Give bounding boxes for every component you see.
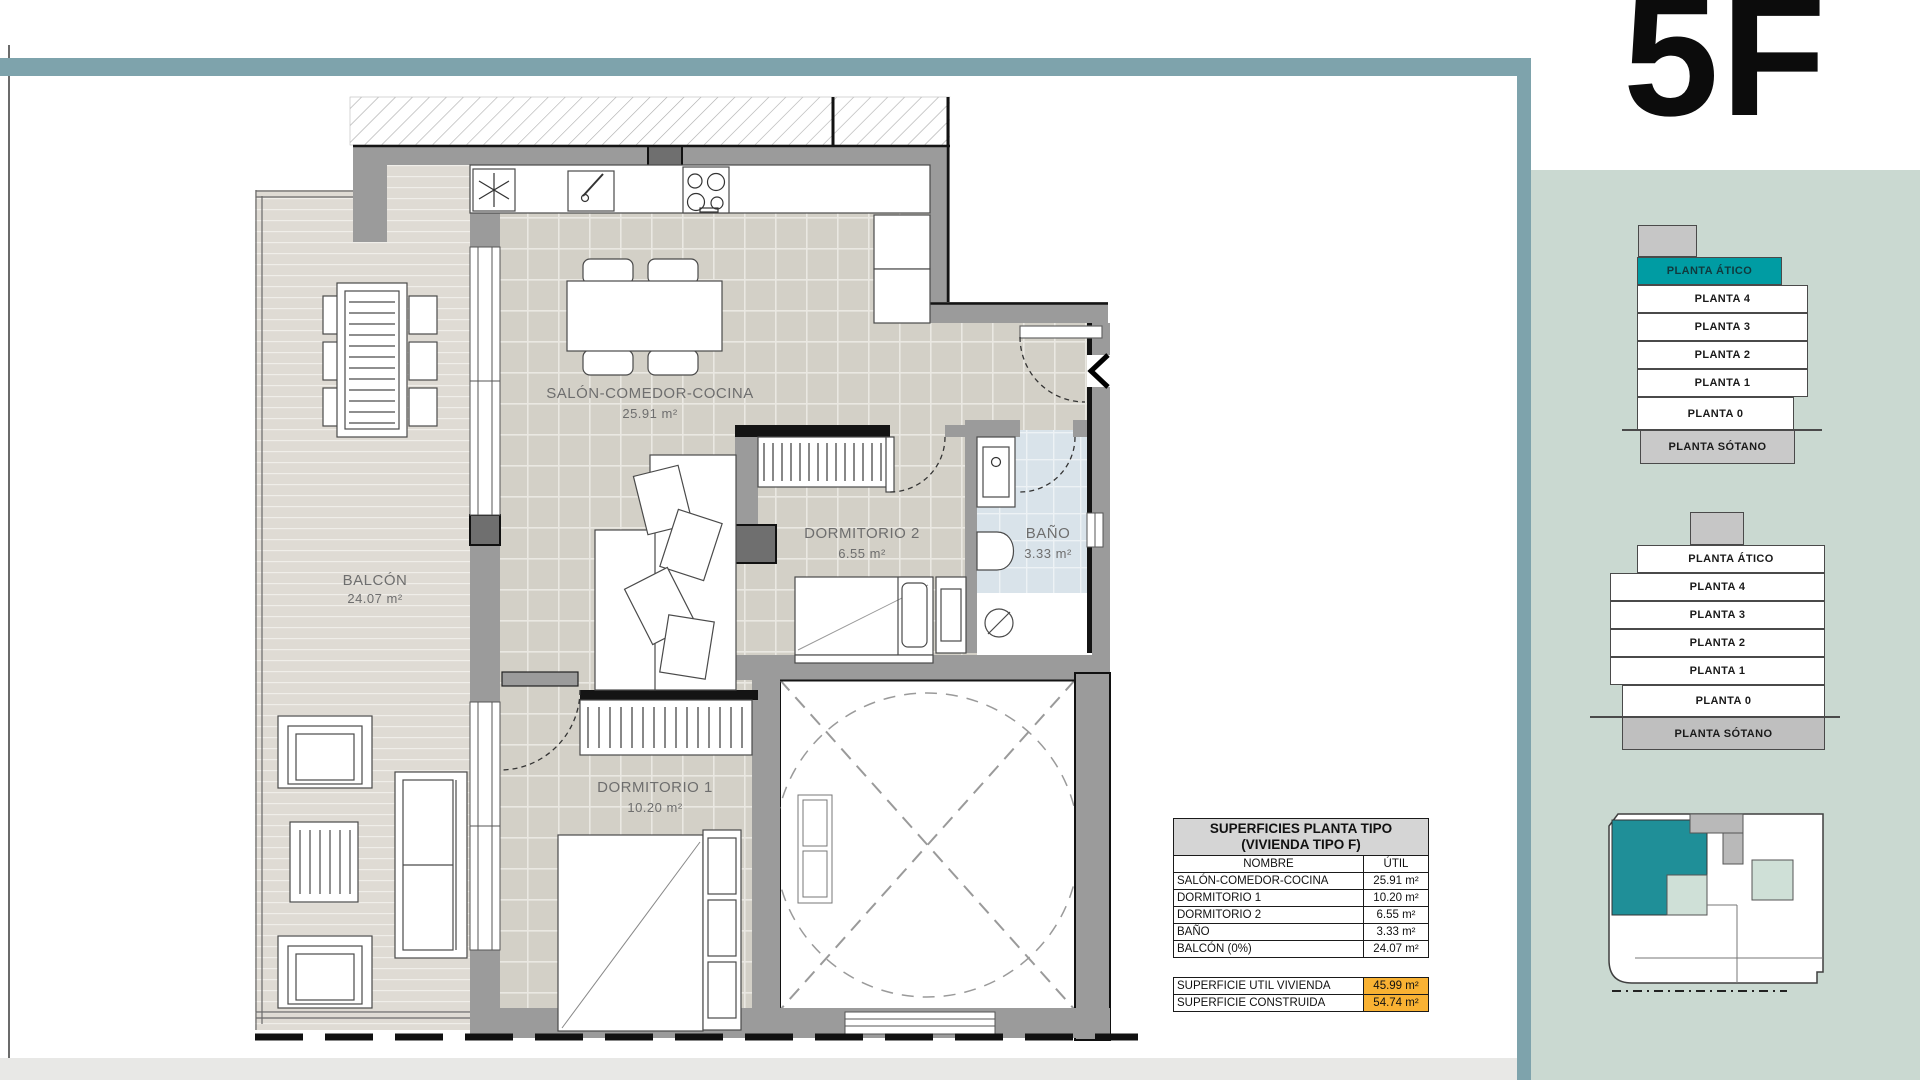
sink-icon (568, 171, 614, 211)
room-label-dormitorio2: DORMITORIO 2 (804, 525, 920, 542)
elevator-shaft (775, 680, 1079, 1010)
table-total-row: SUPERFICIE CONSTRUIDA 54.74 m² (1173, 994, 1429, 1012)
armchair (278, 936, 372, 1008)
room-label-dormitorio1: DORMITORIO 1 (597, 779, 713, 796)
row-value: 10.20 m² (1364, 890, 1428, 906)
row-name: BAÑO (1174, 924, 1364, 940)
floor-row-planta1[interactable]: PLANTA 1 (1637, 369, 1808, 397)
floor-row-atico[interactable]: PLANTA ÁTICO (1637, 545, 1825, 573)
floor-row-planta1[interactable]: PLANTA 1 (1610, 657, 1825, 685)
total-value: 54.74 m² (1364, 995, 1428, 1011)
surfaces-table: SUPERFICIES PLANTA TIPO (VIVIENDA TIPO F… (1173, 818, 1429, 1012)
side-accent-bar (1517, 58, 1531, 1080)
bed (558, 835, 703, 1031)
kitchen-cabinet (874, 215, 930, 269)
row-name: SALÓN-COMEDOR-COCINA (1174, 873, 1364, 889)
table-title-line1: SUPERFICIES PLANTA TIPO (1174, 821, 1428, 837)
room-area-dormitorio2: 6.55 m² (838, 546, 886, 561)
floor-row-planta3[interactable]: PLANTA 3 (1637, 313, 1808, 341)
room-label-balcon: BALCÓN (343, 572, 408, 589)
floor-row-planta2[interactable]: PLANTA 2 (1637, 341, 1808, 369)
table-row: DORMITORIO 2 6.55 m² (1173, 906, 1429, 924)
room-area-salon: 25.91 m² (622, 406, 677, 421)
armchair (278, 716, 372, 788)
roof-box (1638, 225, 1697, 257)
patio-block (1667, 875, 1707, 915)
kitchen-cabinet (874, 269, 930, 323)
room-label-bano: BAÑO (1026, 525, 1071, 542)
unit-title: 5F (1531, 0, 1920, 142)
row-name: DORMITORIO 2 (1174, 907, 1364, 923)
col-header-util: ÚTIL (1364, 856, 1428, 872)
floor-row-sotano[interactable]: PLANTA SÓTANO (1640, 430, 1795, 464)
room-area-balcon: 24.07 m² (347, 591, 402, 606)
row-value: 24.07 m² (1364, 941, 1428, 957)
total-name: SUPERFICIE CONSTRUIDA (1174, 995, 1364, 1011)
floor-selector-bottom: PLANTA ÁTICO PLANTA 4 PLANTA 3 PLANTA 2 … (1590, 512, 1845, 757)
floor-row-atico[interactable]: PLANTA ÁTICO (1637, 257, 1782, 285)
total-name: SUPERFICIE UTIL VIVIENDA (1174, 978, 1364, 994)
door-leaf (502, 672, 578, 686)
floor-row-planta4[interactable]: PLANTA 4 (1637, 285, 1808, 313)
total-value: 45.99 m² (1364, 978, 1428, 994)
table-title-line2: (VIVIENDA TIPO F) (1174, 837, 1428, 853)
row-value: 6.55 m² (1364, 907, 1428, 923)
room-area-dormitorio1: 10.20 m² (627, 800, 682, 815)
col-header-nombre: NOMBRE (1174, 856, 1364, 872)
bed-side-unit (703, 830, 741, 1030)
outdoor-table (337, 283, 407, 437)
floor-row-planta2[interactable]: PLANTA 2 (1610, 629, 1825, 657)
floor-selector-top: PLANTA ÁTICO PLANTA 4 PLANTA 3 PLANTA 2 … (1622, 225, 1832, 470)
table-row: SALÓN-COMEDOR-COCINA 25.91 m² (1173, 872, 1429, 890)
top-accent-bar (0, 58, 1531, 76)
wardrobe (758, 437, 888, 487)
toilet-icon (977, 532, 1014, 570)
floor-row-planta4[interactable]: PLANTA 4 (1610, 573, 1825, 601)
door-leaf (886, 437, 894, 492)
bottom-strip (0, 1058, 1517, 1080)
wardrobe (580, 700, 752, 755)
floor-row-sotano[interactable]: PLANTA SÓTANO (1622, 717, 1825, 750)
table-title: SUPERFICIES PLANTA TIPO (VIVIENDA TIPO F… (1173, 818, 1429, 856)
roof-box (1690, 512, 1744, 545)
neighbour-hatch-band (350, 97, 950, 145)
floor-row-planta0[interactable]: PLANTA 0 (1637, 397, 1794, 430)
table-column-header: NOMBRE ÚTIL (1173, 855, 1429, 873)
dining-table (567, 281, 722, 351)
row-value: 3.33 m² (1364, 924, 1428, 940)
row-value: 25.91 m² (1364, 873, 1428, 889)
site-key-plan (1590, 790, 1850, 1005)
entry-shelf (1020, 326, 1102, 338)
table-row: BAÑO 3.33 m² (1173, 923, 1429, 941)
pillow (902, 583, 927, 647)
floor-row-planta3[interactable]: PLANTA 3 (1610, 601, 1825, 629)
page-edge-line (8, 45, 10, 1058)
table-row: DORMITORIO 1 10.20 m² (1173, 889, 1429, 907)
table-row: BALCÓN (0%) 24.07 m² (1173, 940, 1429, 958)
row-name: DORMITORIO 1 (1174, 890, 1364, 906)
patio-block (1752, 860, 1793, 900)
core-block (1723, 833, 1743, 864)
room-label-salon: SALÓN-COMEDOR-COCINA (546, 385, 754, 402)
exterior-cutout (950, 97, 1087, 302)
room-area-bano: 3.33 m² (1024, 546, 1072, 561)
row-name: BALCÓN (0%) (1174, 941, 1364, 957)
table-gap (1173, 958, 1429, 978)
core-block (1690, 814, 1743, 833)
table-total-row: SUPERFICIE UTIL VIVIENDA 45.99 m² (1173, 977, 1429, 995)
floor-row-planta0[interactable]: PLANTA 0 (1622, 685, 1825, 717)
